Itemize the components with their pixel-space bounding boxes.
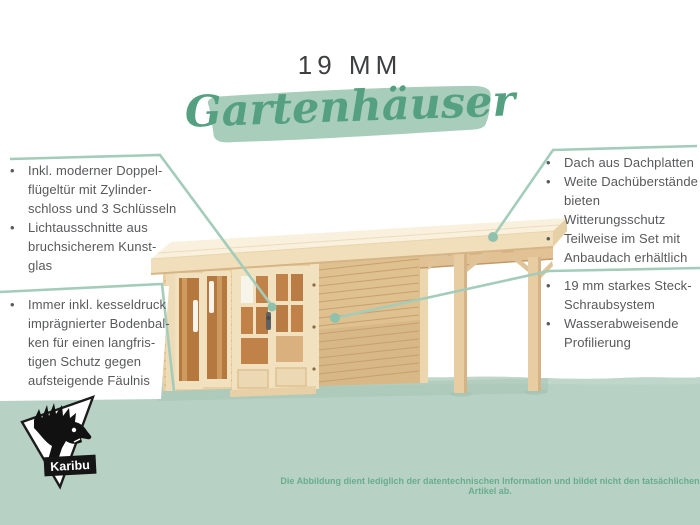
callout-dot-roof: [488, 232, 498, 242]
callout-item-text: 19 mm starkes Steck- Schraubsystem: [564, 276, 692, 314]
door-handle: [266, 312, 271, 330]
bullet-dot: •: [10, 218, 28, 237]
callout-item-text: Weite Dachüberstände bieten Witterungssc…: [564, 172, 700, 229]
callout-item-text: Lichtausschnitte aus bruchsicherem Kunst…: [28, 218, 156, 275]
callout-left-bottom: • Immer inkl. kesseldruck imprägnierter …: [10, 295, 182, 390]
infographic-page: Karibu 19 MM Gartenhäuser • Inkl. modern…: [0, 0, 700, 525]
double-door: [232, 266, 316, 391]
callout-right-bottom: • 19 mm starkes Steck- Schraubsystem • W…: [546, 276, 700, 352]
side-wall-shade: [317, 320, 420, 386]
callout-item-text: Dach aus Dachplatten: [564, 153, 694, 172]
house: [151, 218, 567, 397]
callout-item-text: Wasserabweisende Profilierung: [564, 314, 679, 352]
callout-item-text: Inkl. moderner Doppel- flügeltür mit Zyl…: [28, 161, 176, 218]
callout-left-top: • Inkl. moderner Doppel- flügeltür mit Z…: [10, 161, 192, 275]
bullet-dot: •: [546, 153, 564, 172]
bullet-dot: •: [10, 161, 28, 180]
bullet-dot: •: [546, 314, 564, 333]
callout-right-top: • Dach aus Dachplatten • Weite Dachübers…: [546, 153, 700, 267]
canopy-posts: [428, 250, 553, 397]
cabin-rear-corner: [420, 249, 428, 383]
callout-dot-door: [268, 303, 277, 312]
logo-wordmark: Karibu: [50, 458, 90, 474]
callout-dot-wall: [330, 313, 340, 323]
front-window-2: [203, 271, 231, 387]
callout-item-text: Immer inkl. kesseldruck imprägnierter Bo…: [28, 295, 170, 390]
bullet-dot: •: [546, 229, 564, 248]
disclaimer-text: Die Abbildung dient lediglich der datent…: [280, 476, 700, 496]
bullet-dot: •: [10, 295, 28, 314]
callout-item-text: Teilweise im Set mit Anbaudach erhältlic…: [564, 229, 687, 267]
bullet-dot: •: [546, 276, 564, 295]
bullet-dot: •: [546, 172, 564, 191]
